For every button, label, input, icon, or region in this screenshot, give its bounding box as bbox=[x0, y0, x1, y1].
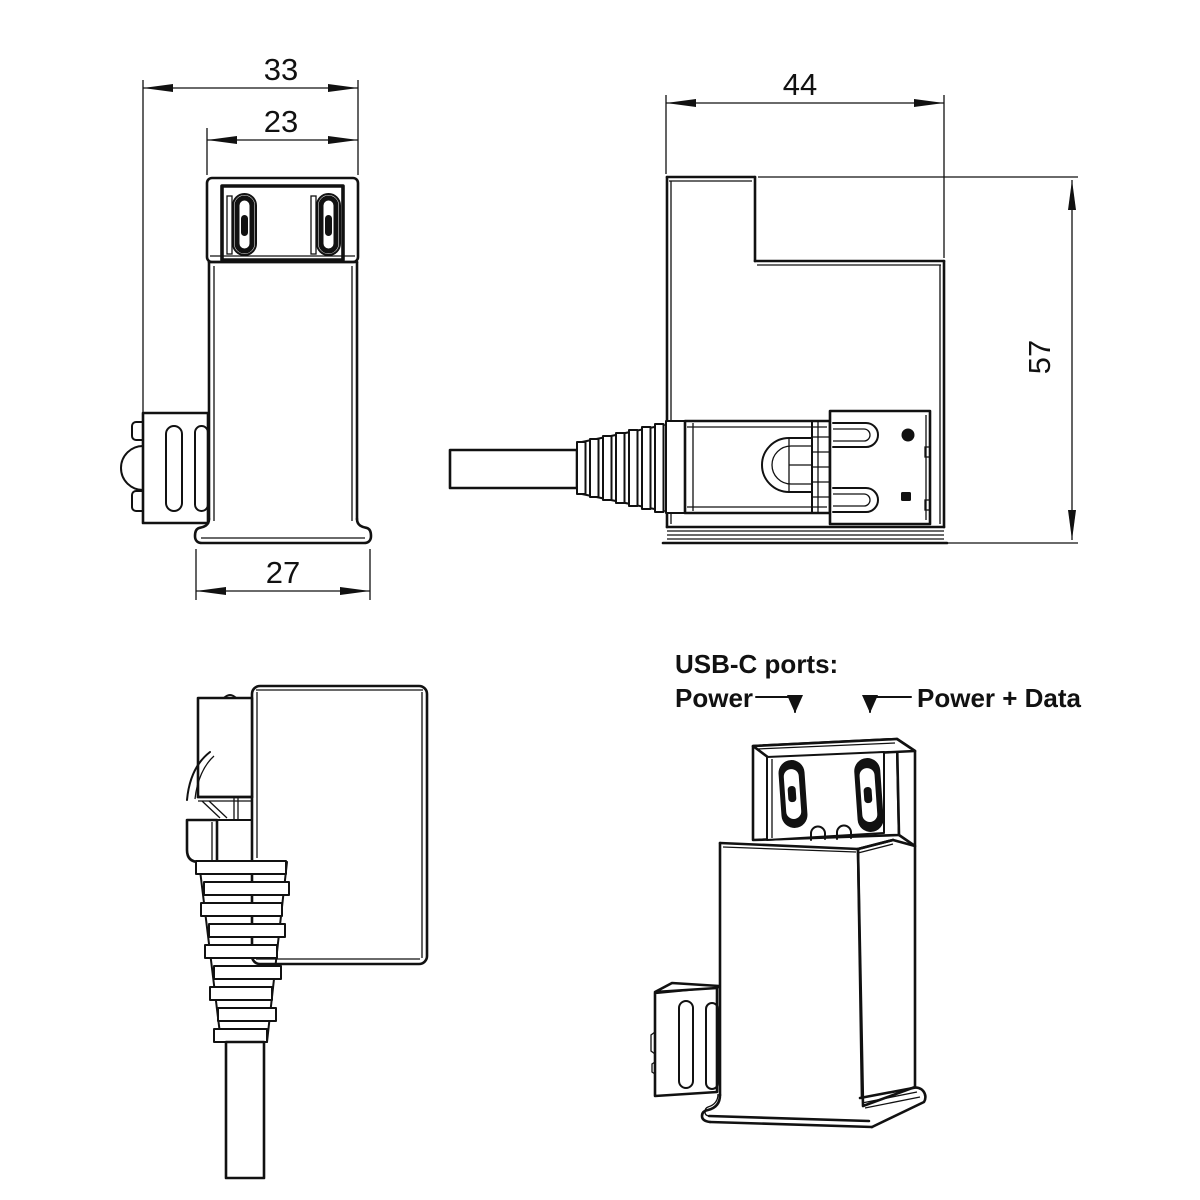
technical-drawing-page: 33 23 27 bbox=[0, 0, 1200, 1200]
dimension-base-width: 27 bbox=[196, 549, 370, 600]
port-right-label: Power + Data bbox=[917, 683, 1082, 713]
iso-head bbox=[753, 739, 915, 846]
port-left-label: Power bbox=[675, 683, 753, 713]
profile-plug bbox=[187, 695, 252, 862]
dimension-base-width-value: 27 bbox=[266, 555, 300, 590]
usb-c-adapter-drawing: 33 23 27 bbox=[0, 0, 1200, 1200]
port-right-leader-arrow bbox=[870, 697, 911, 712]
dimension-head-width: 23 bbox=[207, 104, 358, 175]
dimension-total-width-value: 33 bbox=[264, 52, 298, 87]
front-body bbox=[195, 262, 371, 543]
usb-port-left-front-icon bbox=[233, 194, 256, 255]
dimension-depth-value: 44 bbox=[783, 67, 817, 102]
side-view: 44 57 bbox=[450, 67, 1078, 543]
dimension-depth: 44 bbox=[666, 67, 944, 258]
profile-body bbox=[252, 686, 427, 964]
side-connector-front bbox=[121, 413, 208, 523]
strain-relief-side bbox=[577, 421, 685, 513]
front-view: 33 23 27 bbox=[121, 52, 371, 600]
isometric-view: USB-C ports: Power Power + Data bbox=[651, 649, 1082, 1127]
usb-port-right-front-icon bbox=[317, 194, 340, 255]
iso-side-connector bbox=[651, 983, 719, 1096]
ports-heading-label: USB-C ports: bbox=[675, 649, 838, 679]
iso-body bbox=[702, 840, 925, 1127]
port-left-leader-arrow bbox=[756, 697, 795, 712]
cable-side bbox=[450, 411, 930, 524]
receptacle-side bbox=[830, 411, 930, 524]
plug-side bbox=[685, 421, 830, 513]
dimension-head-width-value: 23 bbox=[264, 104, 298, 139]
profile-view bbox=[187, 686, 427, 1178]
usb-port-right-iso-icon bbox=[853, 757, 884, 833]
dimension-height-value: 57 bbox=[1022, 340, 1057, 374]
front-head bbox=[207, 178, 358, 262]
port-annotations: USB-C ports: Power Power + Data bbox=[675, 649, 1082, 713]
usb-port-left-iso-icon bbox=[778, 759, 809, 829]
strain-relief-profile bbox=[196, 861, 289, 1042]
cable-profile bbox=[226, 1042, 264, 1178]
